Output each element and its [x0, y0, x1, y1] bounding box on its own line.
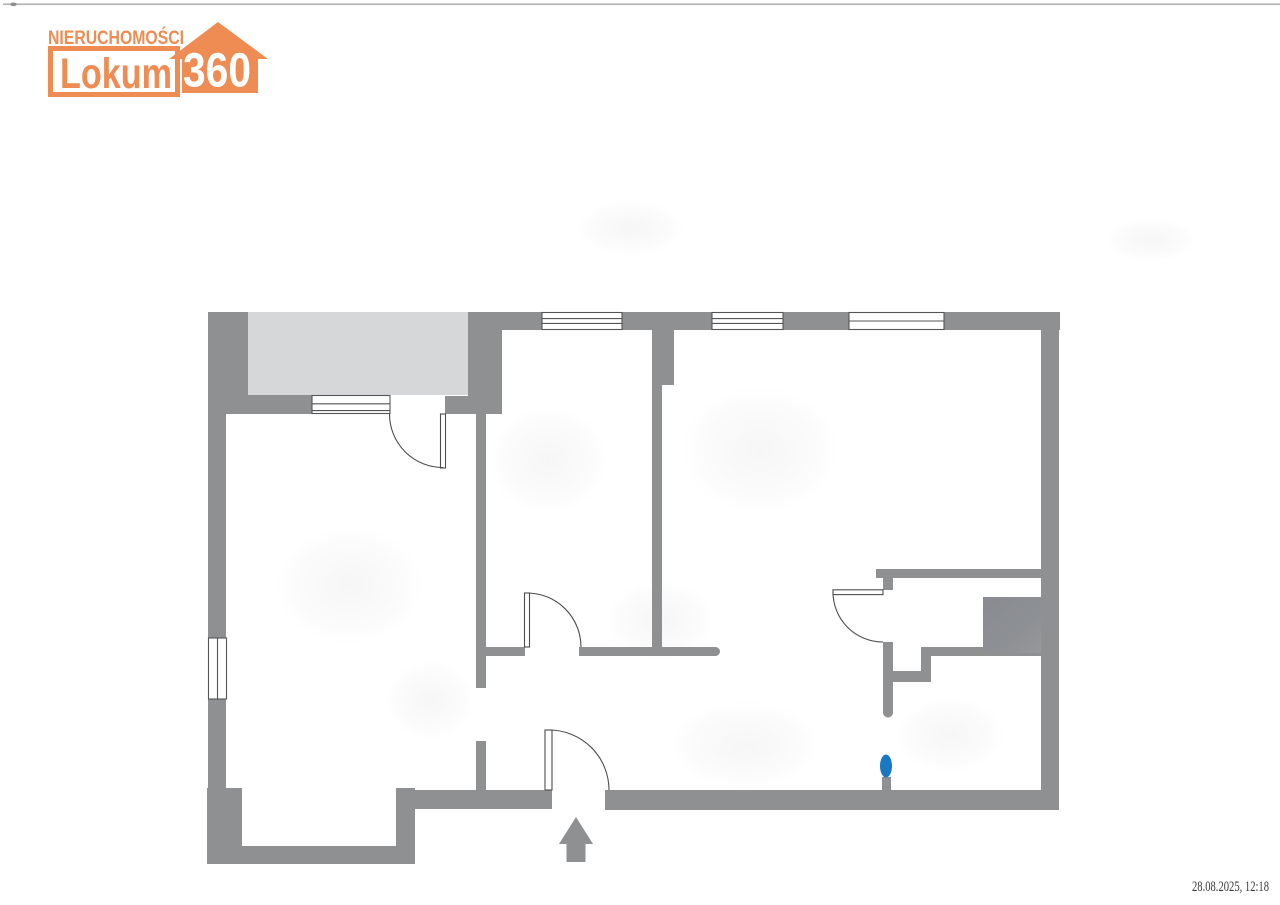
svg-text:360: 360 — [183, 45, 251, 98]
svg-text:28.08.2025, 12:18: 28.08.2025, 12:18 — [1192, 879, 1269, 895]
svg-text:NIERUCHOMOŚCI: NIERUCHOMOŚCI — [48, 27, 184, 49]
svg-text:Lokum: Lokum — [60, 50, 172, 98]
